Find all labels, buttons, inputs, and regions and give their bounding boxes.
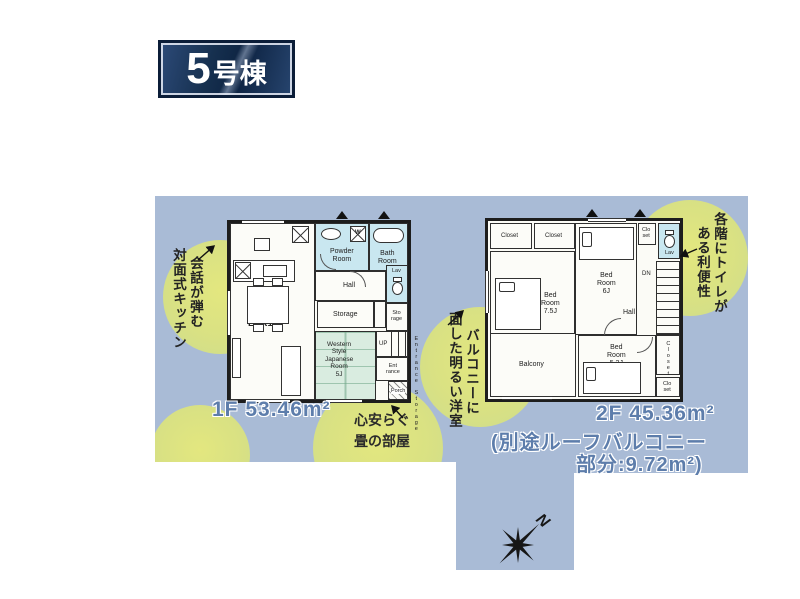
room-closet-right-label: Closet <box>665 341 671 377</box>
window <box>227 291 231 335</box>
floor-plan-1f: LDK16J Powder Room W Bath Room <box>227 220 411 403</box>
stove-icon <box>235 262 251 279</box>
tv-board <box>232 338 241 378</box>
room-closet-small-bottom-label: Clo set <box>663 381 671 394</box>
callout-balcony-line2: 面した明るい洋室 <box>447 312 462 428</box>
room-entrance: Ent rance <box>376 357 408 381</box>
shelf-strip <box>374 301 386 328</box>
room-storage: Storage <box>317 301 374 328</box>
building-badge: 5 号棟 <box>158 40 295 98</box>
room-porch-label: Porch <box>391 388 405 394</box>
pillow-icon <box>582 232 592 247</box>
stairs-up-label: UP <box>379 341 387 348</box>
window <box>502 396 552 400</box>
room-entrance-label: Ent rance <box>386 363 400 376</box>
counter-box <box>254 238 270 251</box>
stairs-down <box>656 261 680 335</box>
sofa <box>281 346 301 396</box>
pillow-icon <box>586 367 596 381</box>
stairs-dn-label: DN <box>642 271 651 278</box>
room-closet-2-label: Closet <box>545 233 562 240</box>
callout-tatami-line1: 心安らぐ <box>344 410 420 431</box>
building-suffix: 号棟 <box>213 51 267 88</box>
callout-toilet: 各階にトイレが ある利便性 <box>694 212 728 324</box>
room-closet-right: Closet <box>656 335 680 375</box>
room-powder: Powder Room W <box>315 223 369 271</box>
door-arc <box>320 254 336 270</box>
arrow-marker-icon <box>586 209 598 217</box>
room-storage-small: Sto rage <box>386 303 408 331</box>
chair <box>272 278 283 286</box>
window <box>242 220 284 224</box>
room-closet-small-bottom: Clo set <box>656 377 680 397</box>
floor-plan-2f: Closet Closet Bed Room 7.5J Bed Room 6J … <box>485 218 683 402</box>
room-ldk: LDK16J <box>230 223 315 400</box>
sink-icon <box>321 228 341 240</box>
room-bed-75-label: Bed Room 7.5J <box>541 292 560 316</box>
kitchen-sink <box>263 265 287 277</box>
window <box>588 218 626 222</box>
chair <box>272 324 283 332</box>
callout-balcony: バルコニーに 面した明るい洋室 <box>446 312 480 430</box>
room-closet-small-top-label: Clo set <box>642 227 650 240</box>
stairs-up: UP <box>376 331 408 357</box>
toilet-icon <box>392 282 403 295</box>
chair <box>253 324 264 332</box>
building-number: 5 <box>186 47 210 91</box>
chair <box>253 278 264 286</box>
floor-plan-flyer: 5 号棟 LDK16J Powder Room <box>0 0 800 599</box>
room-tatami-label: Western Style Japanese Room 5J <box>325 341 353 378</box>
floor1-area-label: 1F 53.46m² <box>212 398 331 422</box>
callout-balcony-line1: バルコニーに <box>464 312 479 415</box>
room-bed-75: Bed Room 7.5J <box>490 251 575 335</box>
washer-label: W <box>355 230 361 237</box>
room-storage-small-label: Sto rage <box>391 310 402 323</box>
room-bed-6: Bed Room 6J <box>575 223 637 335</box>
room-bath-label: Bath Room <box>378 250 397 266</box>
room-bath: Bath Room <box>369 223 408 271</box>
arrow-marker-icon <box>378 211 390 219</box>
room-tatami: Western Style Japanese Room 5J <box>315 331 376 400</box>
callout-toilet-line2: ある利便性 <box>695 212 710 299</box>
room-lav-2f-label: Lav <box>665 250 674 256</box>
callout-tatami: 心安らぐ 畳の部屋 <box>344 410 420 452</box>
callout-kitchen-line1: 会話が弾む <box>188 248 203 329</box>
room-balcony: Balcony <box>490 333 576 397</box>
room-hall-2f-label: Hall <box>623 309 635 317</box>
pillow-icon <box>499 282 515 292</box>
room-closet-1: Closet <box>490 223 532 249</box>
room-balcony-label: Balcony <box>519 361 544 369</box>
dining-table <box>247 286 289 324</box>
window <box>485 271 489 313</box>
room-porch: Porch <box>388 381 408 400</box>
arrow-marker-icon <box>634 209 646 217</box>
stair-treads <box>391 332 409 358</box>
room-bed-52: Bed Room 5.2J <box>578 335 656 397</box>
room-closet-1-label: Closet <box>501 233 518 240</box>
callout-tatami-line2: 畳の部屋 <box>344 431 420 452</box>
floor2-area-label: 2F 45.36m² <box>596 402 715 426</box>
room-lav-2f: Lav <box>658 223 680 259</box>
window <box>326 399 362 403</box>
door-arc <box>637 337 653 353</box>
room-closet-2: Closet <box>534 223 575 249</box>
arrow-marker-icon <box>336 211 348 219</box>
bathtub-icon <box>373 228 404 243</box>
callout-kitchen: 会話が弾む 対面式キッチン <box>170 248 204 358</box>
callout-toilet-line1: 各階にトイレが <box>712 212 727 314</box>
room-bed-6-label: Bed Room 6J <box>597 272 616 296</box>
room-lav-1f-label: Lav <box>392 268 401 274</box>
room-lav-1f: Lav <box>386 265 408 303</box>
room-storage-label: Storage <box>333 311 358 319</box>
toilet-icon <box>664 235 675 248</box>
callout-kitchen-line2: 対面式キッチン <box>171 248 186 350</box>
floor2-area-note-2: 部分:9.72m²) <box>576 448 703 477</box>
door-arc <box>604 318 621 335</box>
window <box>590 396 630 400</box>
room-closet-small-top: Clo set <box>638 223 656 245</box>
heater-icon <box>292 226 309 243</box>
